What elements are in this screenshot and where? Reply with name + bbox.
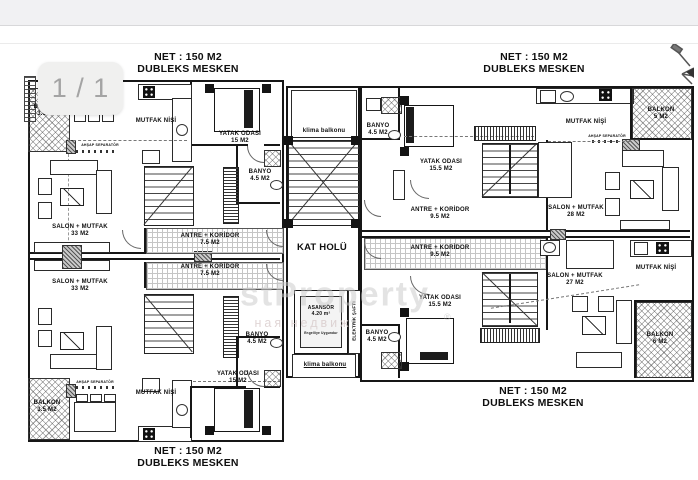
sofa <box>616 300 632 344</box>
sofa <box>96 170 112 214</box>
chair <box>88 114 100 122</box>
label-d-mutfak-nisi: MUTFAK NİŞİ <box>636 265 677 272</box>
armchair <box>605 172 620 190</box>
bed-headboard <box>244 90 253 128</box>
label-d-banyo: BANYO 4.5 M2 <box>366 330 389 344</box>
label-b-klima-balkonu: klima balkonu <box>304 362 347 369</box>
sink-icon <box>176 404 188 416</box>
cabinet <box>142 150 160 164</box>
coffee-table <box>60 332 84 350</box>
label-unit-c-type: DUBLEKS MESKEN <box>483 63 584 75</box>
wardrobe <box>393 170 405 200</box>
wall-post <box>284 219 293 228</box>
shower-hatch <box>381 352 402 369</box>
separator-post <box>66 140 76 154</box>
armchair <box>38 202 52 219</box>
sink-icon <box>560 91 574 102</box>
tv-unit <box>630 180 654 199</box>
wall-post <box>550 229 566 240</box>
tv-unit <box>62 245 82 269</box>
label-c-antre: ANTRE + KORİDOR 9.5 M2 <box>411 207 470 221</box>
separator-post <box>66 384 76 398</box>
chair <box>76 394 88 402</box>
label-elektrik-safti: ELEKTRİK ŞAFTI <box>351 301 356 341</box>
wall <box>286 86 360 88</box>
toilet-icon <box>270 338 283 348</box>
wall <box>190 386 192 438</box>
sofa <box>622 150 664 167</box>
coffee-table <box>60 188 84 206</box>
wall <box>286 86 288 378</box>
wall-post <box>205 84 214 93</box>
stove-icon <box>143 86 155 98</box>
label-unit-a-net: NET : 150 M2 <box>154 51 222 63</box>
label-c-ahsap-separator: AHŞAP SEPARATÖR <box>588 134 626 138</box>
wall <box>264 144 280 146</box>
cabinet <box>634 242 648 255</box>
label-a-salon: SALON + MUTFAK 33 M2 <box>52 224 108 238</box>
armchair <box>605 198 620 216</box>
wall <box>362 324 400 326</box>
label-b-salon: SALON + MUTFAK 33 M2 <box>52 279 108 293</box>
sink-icon <box>176 124 188 136</box>
stove-icon <box>143 428 155 440</box>
separator-dots <box>76 386 116 389</box>
label-c-banyo: BANYO 4.5 M2 <box>367 123 390 137</box>
label-d-salon: SALON + MUTFAK 27 M2 <box>547 273 603 287</box>
label-d-balkon: BALKON 6 M2 <box>647 332 674 346</box>
label-b-banyo: BANYO 4.5 M2 <box>246 332 269 346</box>
chair <box>104 394 116 402</box>
wall-post <box>205 426 214 435</box>
label-b-ahsap-separator: AHŞAP SEPARATÖR <box>76 380 114 384</box>
wall <box>236 202 280 204</box>
wall <box>634 302 636 378</box>
radiator <box>474 126 536 141</box>
separator-dots <box>76 150 116 153</box>
wall <box>144 228 146 252</box>
label-b-mutfak-nisi: MUTFAK NİŞİ <box>136 390 177 397</box>
label-b-yatak-odasi: YATAK ODASI 15 M2 <box>217 371 259 385</box>
shower-hatch <box>264 150 281 167</box>
bed-headboard <box>420 352 448 360</box>
armchair <box>38 308 52 325</box>
armchair <box>38 178 52 195</box>
label-unit-d-type: DUBLEKS MESKEN <box>482 397 583 409</box>
sofa <box>50 354 98 369</box>
tv-unit <box>582 316 606 335</box>
shower-hatch <box>381 97 402 114</box>
wall-post <box>400 147 409 156</box>
label-unit-a-type: DUBLEKS MESKEN <box>137 63 238 75</box>
label-b-balkon: BALKON 3.5 M2 <box>34 400 61 414</box>
stove-icon <box>656 242 669 254</box>
dashed-line <box>68 140 187 141</box>
label-a-ahsap-separator: AHŞAP SEPARATÖR <box>81 143 119 147</box>
label-a-antre: ANTRE + KORİDOR 7.5 M2 <box>181 233 240 247</box>
dining-table <box>566 240 614 269</box>
toilet-icon <box>388 130 401 140</box>
label-c-salon: SALON + MUTFAK 28 M2 <box>548 205 604 219</box>
dining-table <box>74 402 116 432</box>
stove-icon <box>599 89 612 101</box>
bed <box>214 388 260 432</box>
bed-headboard <box>406 107 414 143</box>
sink-icon <box>543 242 556 253</box>
elevator-cabin <box>300 296 342 348</box>
chair <box>74 114 86 122</box>
label-d-antre: ANTRE + KORİDOR 9.5 M2 <box>411 245 470 259</box>
sofa <box>662 167 679 211</box>
label-asansor: ASANSÖR 4.20 m² <box>308 306 334 318</box>
staircase <box>144 166 194 226</box>
toilet-icon <box>270 180 283 190</box>
label-a-banyo: BANYO 4.5 M2 <box>249 169 272 183</box>
toilet-icon <box>388 332 401 342</box>
label-d-yatak-odasi: YATAK ODASI 15.5 M2 <box>419 295 461 309</box>
label-unit-b-type: DUBLEKS MESKEN <box>137 457 238 469</box>
wardrobe <box>223 167 239 224</box>
dining-table <box>538 142 572 198</box>
wall-post <box>284 136 293 145</box>
label-unit-d-net: NET : 150 M2 <box>499 385 567 397</box>
armchair <box>598 296 614 312</box>
wall <box>144 262 146 288</box>
radiator <box>480 328 540 343</box>
label-c-mutfak-nisi: MUTFAK NİŞİ <box>566 119 607 126</box>
wall-post <box>262 426 271 435</box>
wall <box>634 300 692 302</box>
bed <box>214 88 260 132</box>
label-asansor-note: Engelliye Uygundur <box>304 332 338 336</box>
wall <box>360 230 690 232</box>
label-kat-holu: KAT HOLÜ <box>297 242 347 253</box>
armchair <box>38 330 52 347</box>
north-arrow-icon <box>648 44 694 94</box>
label-a-yatak-odasi: YATAK ODASI 15 M2 <box>219 131 261 145</box>
wall-post <box>351 219 360 228</box>
page-counter-badge: 1 / 1 <box>38 62 123 115</box>
label-unit-c-net: NET : 150 M2 <box>500 51 568 63</box>
sofa <box>576 352 622 368</box>
shower-hatch <box>264 370 281 387</box>
armchair <box>572 296 588 312</box>
wall-post <box>400 96 409 105</box>
chair <box>102 114 114 122</box>
label-c-balkon: BALKON 5 M2 <box>648 107 675 121</box>
label-a-klima-balkonu: klima balkonu <box>303 128 346 135</box>
sofa <box>96 326 112 370</box>
label-unit-b-net: NET : 150 M2 <box>154 445 222 457</box>
wall-post <box>400 308 409 317</box>
washbasin <box>366 98 381 111</box>
wall <box>630 88 632 140</box>
label-a-mutfak-nisi: MUTFAK NİŞİ <box>136 118 177 125</box>
viewer-top-bar <box>0 0 698 26</box>
chair <box>90 394 102 402</box>
sideboard <box>620 220 670 230</box>
image-viewer: stProperty ® ная недвиж NET : 150 M2DUBL… <box>0 0 698 480</box>
cabinet <box>540 90 556 103</box>
sofa <box>50 160 98 175</box>
bed-headboard <box>244 390 253 428</box>
label-b-antre: ANTRE + KORİDOR 7.5 M2 <box>181 264 240 278</box>
wall-post <box>262 84 271 93</box>
label-c-yatak-odasi: YATAK ODASI 15.5 M2 <box>420 159 462 173</box>
wall-post <box>351 136 360 145</box>
